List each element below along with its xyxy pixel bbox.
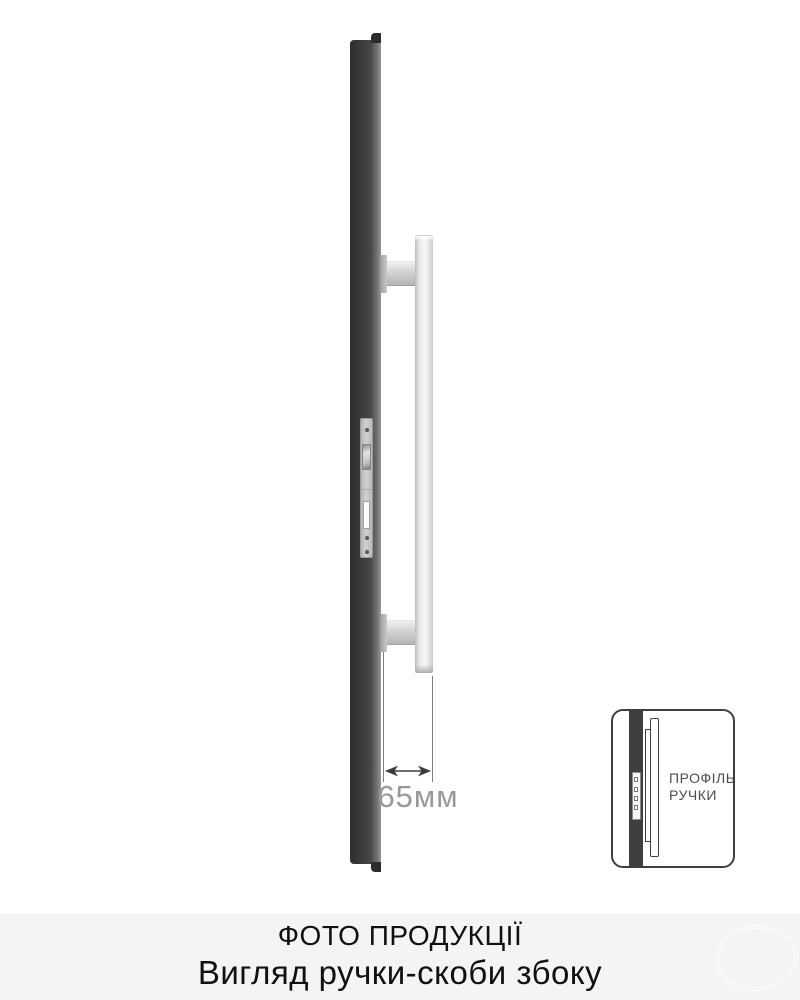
profile-inset-box: ПРОФІЛЬ РУЧКИ (611, 709, 735, 868)
inset-faceplate-mark (634, 777, 638, 782)
handle-bar-top-bevel (415, 235, 433, 241)
door-edge-lip-bottom (371, 862, 381, 872)
inset-faceplate-mark (634, 787, 638, 792)
handle-bar-bottom-bevel (415, 665, 433, 673)
handle-standoff-bottom (387, 620, 415, 645)
lock-screw-bottom (365, 550, 369, 554)
inset-faceplate-mark (634, 805, 638, 810)
dimension-label: 65мм (368, 779, 468, 815)
latch-bolt (362, 444, 371, 470)
inset-handle-bar-outline (650, 718, 659, 857)
dimension-extension-line-right (432, 676, 433, 782)
caption-strip: ФОТО ПРОДУКЦІЇ Вигляд ручки-скоби збоку (0, 913, 800, 1000)
handle-bar (415, 235, 433, 673)
inset-faceplate-mark (634, 796, 638, 801)
door-edge-lip-top (371, 33, 381, 43)
product-photo-canvas: 65мм ПРОФІЛЬ РУЧКИ ФОТО ПРОДУКЦІЇ Вигляд… (0, 0, 800, 1000)
lock-faceplate (360, 418, 373, 558)
dimension-arrow-icon (384, 763, 432, 779)
lock-screw-top (365, 428, 369, 432)
inset-label: ПРОФІЛЬ РУЧКИ (669, 770, 735, 787)
lock-screw-middle (365, 536, 369, 540)
inset-label-line1: ПРОФІЛЬ (669, 770, 735, 787)
deadbolt-slot (363, 501, 370, 529)
handle-mount-plate-bottom (380, 614, 387, 652)
caption-subtitle: Вигляд ручки-скоби збоку (0, 954, 800, 992)
inset-lock-faceplate (632, 772, 641, 820)
handle-mount-plate-top (380, 255, 387, 293)
caption-title: ФОТО ПРОДУКЦІЇ (0, 920, 800, 952)
faceplate-seam (361, 489, 372, 490)
handle-standoff-top (387, 261, 415, 286)
inset-label-line2: РУЧКИ (669, 787, 717, 804)
